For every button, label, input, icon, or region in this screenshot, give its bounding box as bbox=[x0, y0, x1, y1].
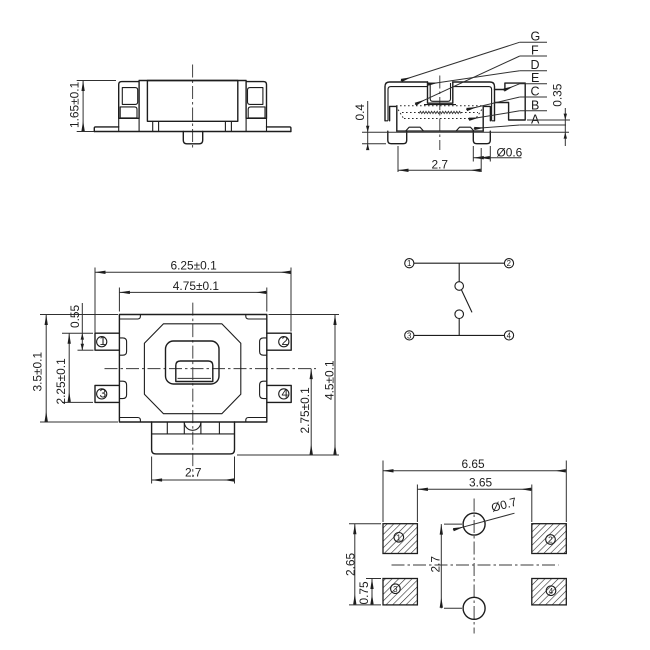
svg-text:0.75: 0.75 bbox=[357, 581, 371, 605]
svg-text:2.25±0.1: 2.25±0.1 bbox=[54, 358, 68, 405]
svg-text:1: 1 bbox=[396, 534, 401, 543]
svg-text:C: C bbox=[531, 85, 540, 99]
svg-text:0.35: 0.35 bbox=[551, 83, 565, 107]
svg-text:4: 4 bbox=[549, 587, 554, 596]
svg-text:3.5±0.1: 3.5±0.1 bbox=[31, 352, 45, 392]
svg-text:2.65: 2.65 bbox=[343, 552, 357, 576]
svg-text:3: 3 bbox=[407, 331, 411, 340]
svg-text:3: 3 bbox=[100, 386, 107, 400]
svg-text:1.65±0.1: 1.65±0.1 bbox=[68, 81, 82, 128]
svg-text:4.5±0.1: 4.5±0.1 bbox=[323, 360, 337, 400]
svg-text:4: 4 bbox=[282, 386, 289, 400]
svg-text:D: D bbox=[531, 58, 540, 72]
svg-text:G: G bbox=[531, 30, 541, 44]
svg-text:1: 1 bbox=[407, 259, 411, 268]
svg-text:2.7: 2.7 bbox=[432, 157, 449, 171]
svg-text:4.75±0.1: 4.75±0.1 bbox=[173, 279, 220, 293]
svg-text:2.75±0.1: 2.75±0.1 bbox=[298, 387, 312, 434]
svg-text:E: E bbox=[531, 71, 539, 85]
svg-text:6.25±0.1: 6.25±0.1 bbox=[171, 259, 218, 273]
svg-text:2: 2 bbox=[507, 259, 511, 268]
svg-text:F: F bbox=[531, 44, 539, 58]
svg-text:3.65: 3.65 bbox=[469, 476, 493, 490]
svg-text:2: 2 bbox=[282, 334, 289, 348]
svg-text:1: 1 bbox=[100, 334, 107, 348]
svg-text:Ø0.6: Ø0.6 bbox=[497, 145, 523, 159]
svg-text:0.55: 0.55 bbox=[68, 304, 82, 328]
svg-text:2.7: 2.7 bbox=[429, 556, 443, 573]
svg-text:2.7: 2.7 bbox=[185, 466, 202, 480]
svg-text:0.4: 0.4 bbox=[353, 104, 367, 121]
svg-text:3: 3 bbox=[393, 585, 398, 594]
svg-text:4: 4 bbox=[507, 331, 512, 340]
svg-text:6.65: 6.65 bbox=[462, 457, 486, 471]
svg-text:2: 2 bbox=[548, 536, 553, 545]
svg-text:B: B bbox=[531, 98, 539, 112]
